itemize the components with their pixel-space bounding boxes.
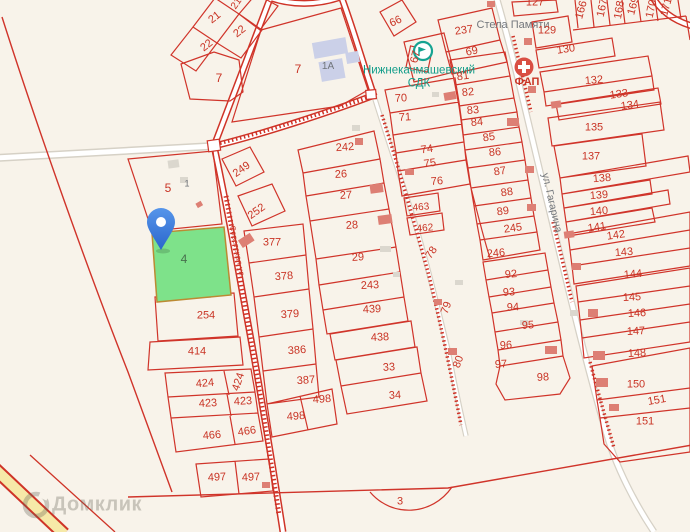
- map-canvas[interactable]: [0, 0, 690, 532]
- culture-house-icon: [414, 42, 432, 60]
- domclick-watermark: Домклик: [52, 494, 142, 517]
- map-viewport[interactable]: Стела Памяти Нижнекачмашевский СДК ФАП у…: [0, 0, 690, 532]
- parcel-outlines[interactable]: [2, 0, 690, 510]
- medical-point-icon: [515, 58, 534, 77]
- road-network: [0, 0, 690, 532]
